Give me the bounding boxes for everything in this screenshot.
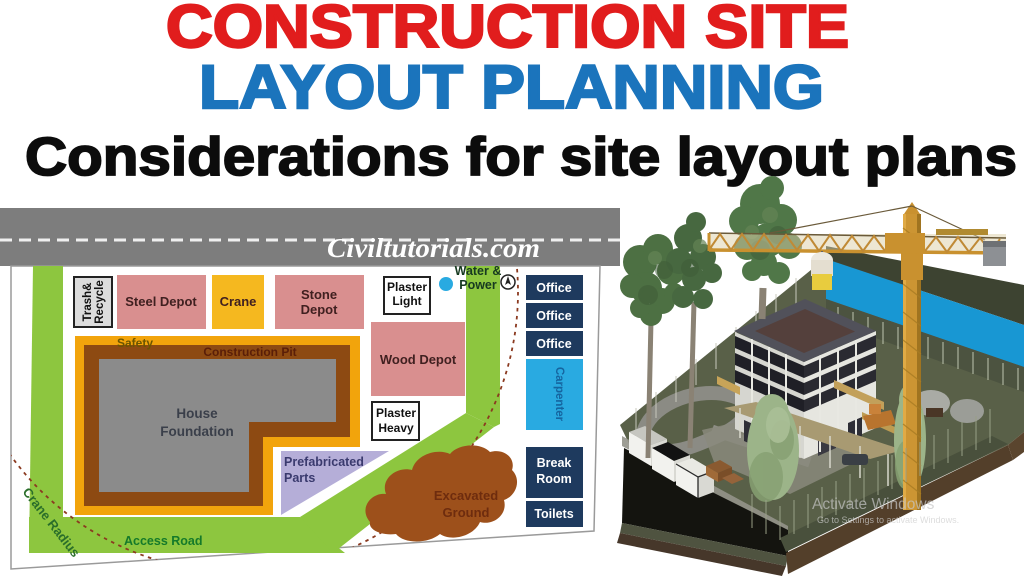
svg-text:Office: Office: [536, 337, 571, 351]
svg-text:Office: Office: [536, 281, 571, 295]
svg-text:PlasterLight: PlasterLight: [387, 280, 427, 308]
svg-text:Carpenter: Carpenter: [553, 367, 565, 422]
svg-text:Crane: Crane: [220, 294, 257, 309]
svg-text:Safety: Safety: [117, 336, 153, 350]
svg-text:CONSTRUCTION SITE: CONSTRUCTION SITE: [166, 0, 849, 60]
svg-text:Go to Settings to activate Win: Go to Settings to activate Windows.: [817, 515, 959, 525]
svg-text:Toilets: Toilets: [534, 507, 573, 521]
svg-text:Civiltutorials.com: Civiltutorials.com: [327, 233, 540, 263]
svg-text:Access Road: Access Road: [124, 534, 203, 548]
svg-text:LAYOUT PLANNING: LAYOUT PLANNING: [199, 53, 824, 121]
svg-text:StoneDepot: StoneDepot: [301, 287, 339, 317]
svg-text:Wood Depot: Wood Depot: [380, 352, 457, 367]
svg-text:Activate Windows: Activate Windows: [812, 496, 935, 513]
svg-text:Water &Power: Water &Power: [455, 264, 502, 292]
svg-text:Considerations for site layout: Considerations for site layout plans: [25, 127, 1017, 187]
svg-text:PlasterHeavy: PlasterHeavy: [376, 406, 416, 435]
svg-text:Construction Pit: Construction Pit: [203, 345, 296, 359]
svg-text:Office: Office: [536, 309, 571, 323]
svg-text:Trash&Recycle: Trash&Recycle: [82, 280, 106, 323]
svg-text:Steel Depot: Steel Depot: [125, 294, 197, 309]
